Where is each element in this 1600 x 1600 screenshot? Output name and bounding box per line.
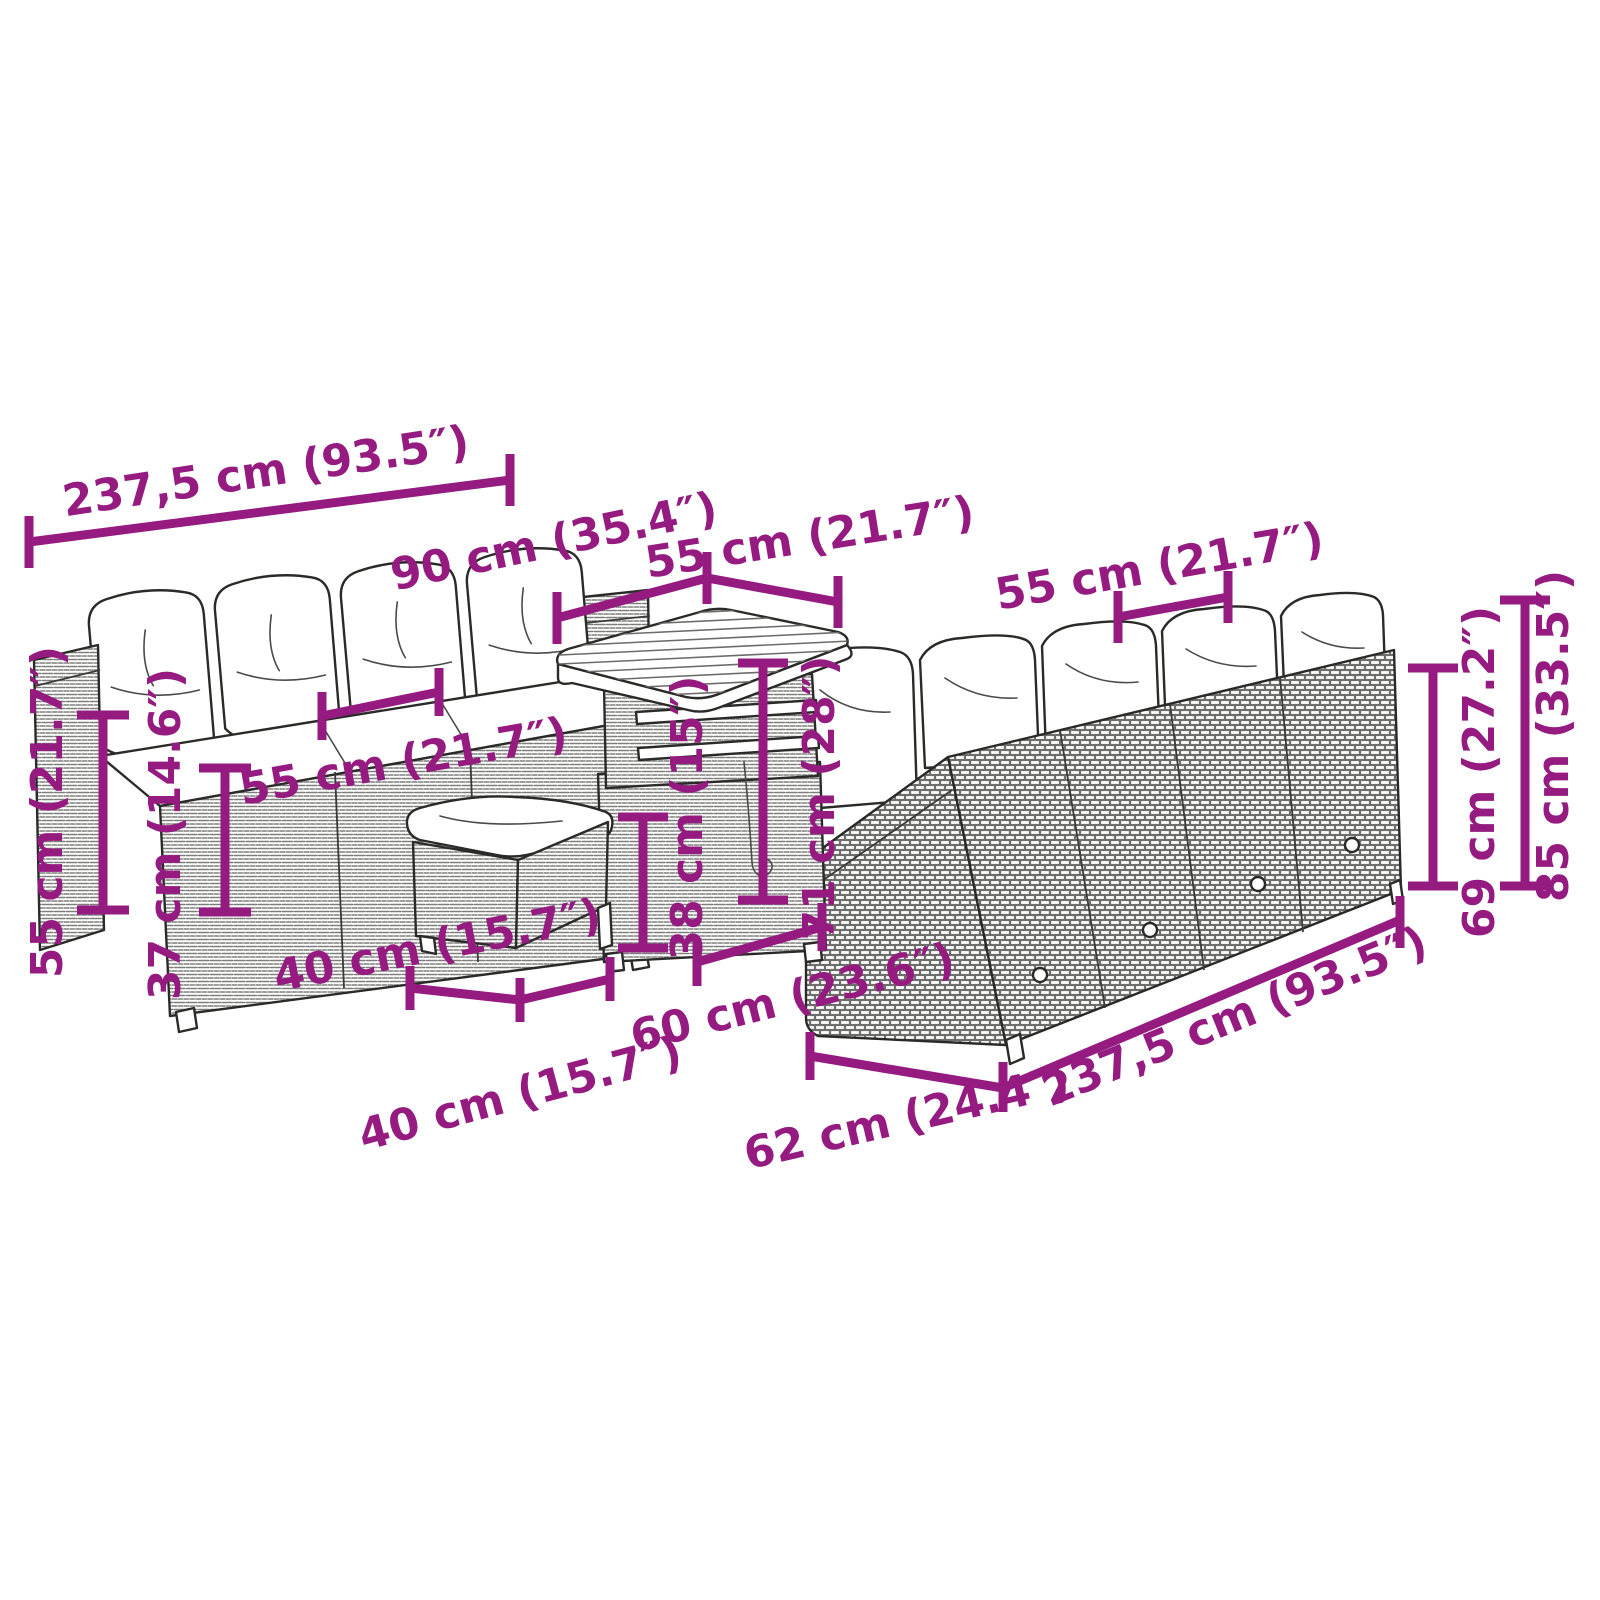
dim-label-table-height-38: 38 cm (15″): [662, 676, 713, 961]
diagram-canvas: 237,5 cm (93.5″) 90 cm (35.4″) 55 cm (21…: [0, 0, 1600, 1600]
dimension-diagram: 237,5 cm (93.5″) 90 cm (35.4″) 55 cm (21…: [0, 0, 1600, 1600]
left-sofa-leg: [176, 1008, 197, 1032]
dim-label-seat-height-37: 37 cm (14.6″): [140, 668, 191, 1000]
dim-label-table-height-71: 71 cm (28″): [794, 656, 845, 941]
dim-label-right-sofa-seat-55: 55 cm (21.7″): [991, 513, 1327, 621]
dim-back-height-69: [1408, 668, 1458, 886]
dim-label-back-height-69: 69 cm (27.2″): [1454, 606, 1505, 938]
dim-label-sofa-height-55: 55 cm (21.7″): [22, 646, 73, 978]
dim-label-total-height-85: 85 cm (33.5″): [1528, 570, 1579, 902]
right-sofa-leg: [1006, 1034, 1024, 1064]
